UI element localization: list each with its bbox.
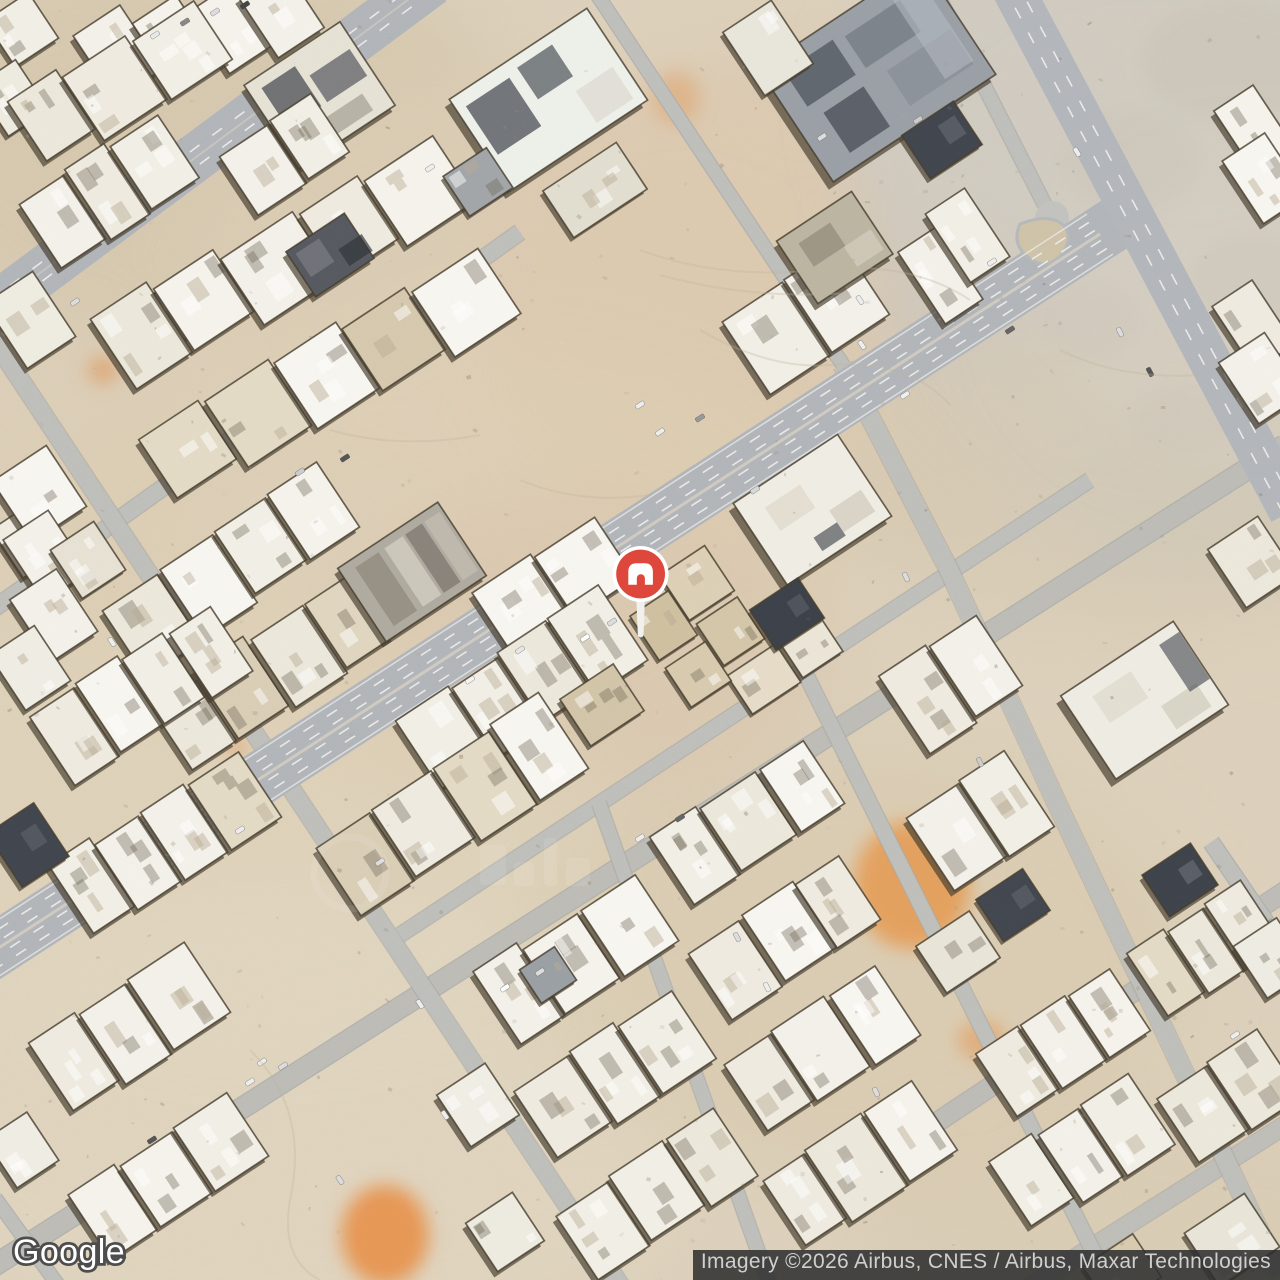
svg-text:Google: Google [13, 1233, 125, 1271]
